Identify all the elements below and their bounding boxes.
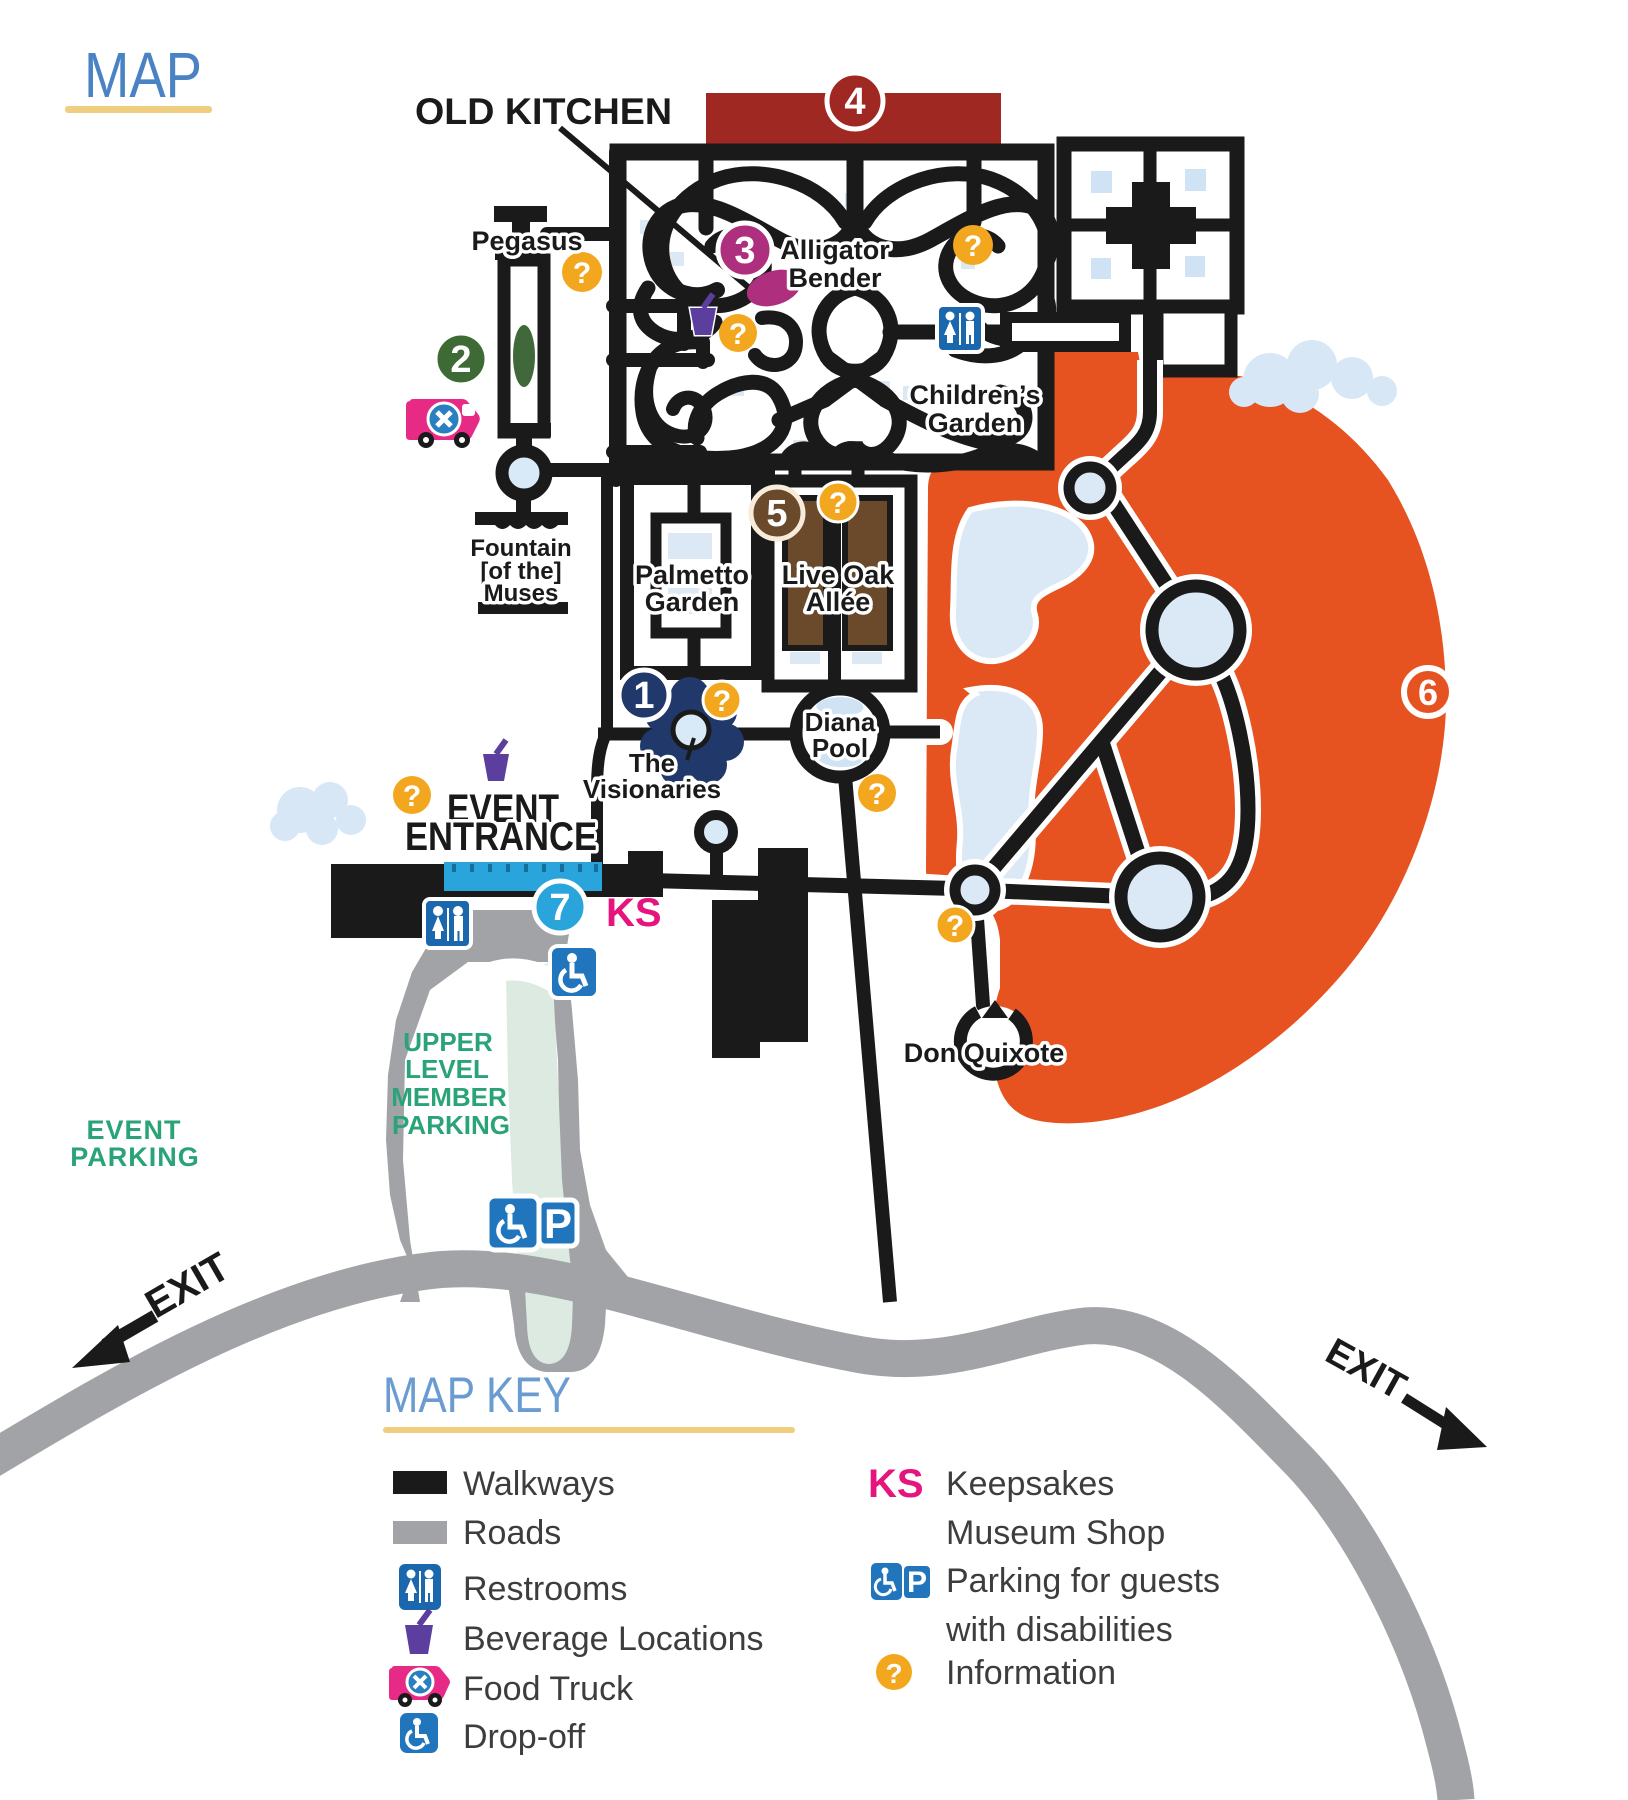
svg-text:Visionaries: Visionaries: [583, 774, 721, 804]
svg-text:Information: Information: [946, 1654, 1116, 1692]
svg-text:3: 3: [734, 230, 755, 272]
svg-text:ENTRANCE: ENTRANCE: [405, 815, 597, 859]
svg-text:Alligator: Alligator: [780, 235, 890, 265]
svg-text:MEMBER: MEMBER: [391, 1082, 507, 1112]
svg-text:with disabilities: with disabilities: [945, 1611, 1173, 1649]
svg-text:5: 5: [766, 493, 787, 535]
svg-text:Museum Shop: Museum Shop: [946, 1514, 1165, 1552]
svg-text:PARKING: PARKING: [392, 1110, 510, 1140]
svg-text:?: ?: [964, 230, 982, 263]
svg-text:Keepsakes: Keepsakes: [946, 1465, 1114, 1503]
svg-text:?: ?: [403, 780, 421, 813]
svg-text:?: ?: [729, 318, 747, 351]
svg-text:1: 1: [633, 675, 654, 717]
svg-text:Allée: Allée: [806, 587, 871, 617]
svg-text:Garden: Garden: [928, 408, 1023, 438]
svg-text:P: P: [544, 1200, 572, 1247]
svg-text:Muses: Muses: [484, 580, 559, 607]
svg-text:6: 6: [1418, 672, 1438, 713]
svg-text:MAP KEY: MAP KEY: [383, 1367, 571, 1423]
svg-text:Walkways: Walkways: [463, 1465, 615, 1503]
svg-text:Beverage Locations: Beverage Locations: [463, 1620, 764, 1658]
svg-text:P: P: [907, 1566, 927, 1599]
svg-text:EVENT: EVENT: [86, 1115, 181, 1145]
svg-text:?: ?: [946, 910, 964, 943]
svg-text:Parking for guests: Parking for guests: [946, 1562, 1220, 1600]
svg-text:?: ?: [885, 1658, 902, 1689]
svg-text:KS: KS: [868, 1462, 924, 1506]
svg-text:OLD KITCHEN: OLD KITCHEN: [415, 91, 672, 132]
svg-text:Food Truck: Food Truck: [463, 1670, 634, 1708]
svg-text:?: ?: [713, 685, 731, 718]
svg-text:Roads: Roads: [463, 1514, 561, 1552]
svg-text:PARKING: PARKING: [70, 1142, 200, 1172]
svg-text:?: ?: [573, 257, 591, 290]
svg-text:Live Oak: Live Oak: [782, 560, 896, 590]
svg-text:4: 4: [844, 81, 865, 123]
svg-text:Restrooms: Restrooms: [463, 1570, 627, 1608]
svg-text:?: ?: [868, 778, 886, 811]
svg-text:Pegasus: Pegasus: [471, 226, 582, 256]
svg-text:Don Quixote: Don Quixote: [904, 1038, 1065, 1068]
svg-text:2: 2: [450, 339, 471, 381]
svg-text:Drop-off: Drop-off: [463, 1718, 586, 1756]
svg-text:Children’s: Children’s: [909, 380, 1040, 410]
svg-text:LEVEL: LEVEL: [405, 1054, 489, 1084]
svg-text:UPPER: UPPER: [403, 1027, 493, 1057]
svg-text:Palmetto: Palmetto: [635, 560, 749, 590]
svg-text:KS: KS: [606, 891, 662, 935]
svg-text:Garden: Garden: [645, 587, 740, 617]
svg-text:?: ?: [829, 487, 847, 520]
svg-text:Pool: Pool: [812, 733, 868, 763]
svg-text:Bender: Bender: [788, 263, 882, 293]
svg-text:7: 7: [549, 887, 570, 929]
svg-text:MAP: MAP: [84, 39, 202, 111]
